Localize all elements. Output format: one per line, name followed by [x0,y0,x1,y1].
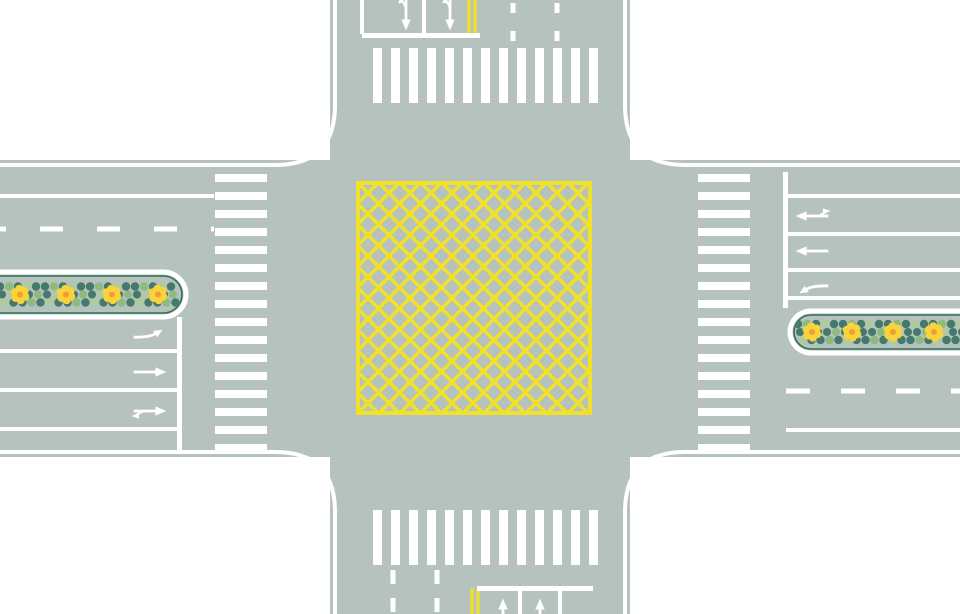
stop-line-north [362,33,480,38]
stop-line-south [477,586,593,591]
median-strip-east [790,311,960,353]
screenshot-root [0,0,960,614]
stop-line-east [783,172,788,308]
intersection-diagram [0,0,960,614]
median-strip-west [0,272,186,317]
stop-line-west [177,317,182,452]
